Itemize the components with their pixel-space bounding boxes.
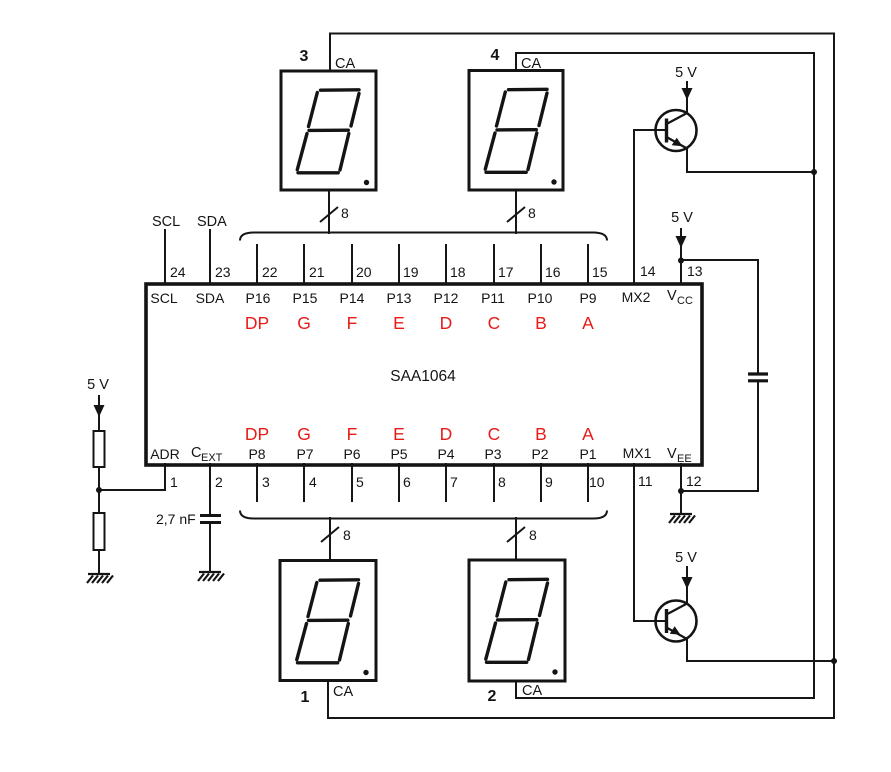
- svg-text:P4: P4: [437, 446, 454, 462]
- svg-text:B: B: [535, 424, 547, 444]
- svg-text:17: 17: [498, 264, 514, 280]
- svg-text:SDA: SDA: [196, 290, 225, 306]
- svg-text:4: 4: [491, 47, 500, 64]
- svg-text:B: B: [535, 313, 547, 333]
- svg-text:2: 2: [488, 688, 497, 705]
- svg-text:5 V: 5 V: [87, 377, 109, 393]
- svg-text:18: 18: [450, 264, 466, 280]
- svg-text:ADR: ADR: [150, 446, 180, 462]
- svg-text:13: 13: [687, 263, 703, 279]
- svg-text:P9: P9: [579, 290, 596, 306]
- svg-text:P15: P15: [293, 290, 318, 306]
- svg-text:P3: P3: [484, 446, 501, 462]
- svg-text:E: E: [393, 424, 405, 444]
- svg-text:5 V: 5 V: [675, 550, 697, 566]
- svg-text:EXT: EXT: [201, 452, 223, 464]
- svg-text:16: 16: [545, 264, 561, 280]
- svg-text:C: C: [191, 445, 201, 461]
- svg-text:EE: EE: [677, 453, 692, 465]
- svg-text:P7: P7: [296, 446, 313, 462]
- svg-text:CA: CA: [333, 684, 353, 700]
- svg-text:DP: DP: [245, 424, 269, 444]
- svg-text:A: A: [582, 313, 594, 333]
- svg-text:14: 14: [640, 263, 656, 279]
- svg-text:F: F: [347, 424, 358, 444]
- svg-text:11: 11: [638, 473, 653, 489]
- svg-text:1: 1: [170, 474, 178, 490]
- svg-text:P5: P5: [390, 446, 407, 462]
- svg-text:SDA: SDA: [197, 214, 227, 230]
- svg-text:G: G: [297, 313, 311, 333]
- svg-text:G: G: [297, 424, 311, 444]
- svg-text:DP: DP: [245, 313, 269, 333]
- svg-text:6: 6: [403, 474, 411, 490]
- svg-text:C: C: [488, 424, 501, 444]
- svg-text:C: C: [488, 313, 501, 333]
- svg-text:9: 9: [545, 474, 553, 490]
- svg-text:D: D: [440, 313, 453, 333]
- svg-text:3: 3: [300, 48, 309, 65]
- svg-text:P1: P1: [579, 446, 596, 462]
- svg-text:CA: CA: [335, 56, 355, 72]
- svg-text:21: 21: [309, 264, 325, 280]
- svg-text:4: 4: [309, 474, 317, 490]
- svg-text:8: 8: [529, 527, 537, 543]
- svg-text:P8: P8: [248, 446, 265, 462]
- svg-text:8: 8: [343, 527, 351, 543]
- svg-text:P10: P10: [528, 290, 553, 306]
- svg-text:20: 20: [356, 264, 372, 280]
- svg-text:MX2: MX2: [622, 289, 651, 305]
- svg-text:3: 3: [262, 474, 270, 490]
- svg-text:23: 23: [215, 264, 231, 280]
- svg-text:1: 1: [301, 689, 310, 706]
- svg-text:SCL: SCL: [152, 214, 180, 230]
- svg-text:P14: P14: [340, 290, 365, 306]
- svg-text:F: F: [347, 313, 358, 333]
- svg-text:8: 8: [341, 205, 349, 221]
- svg-text:12: 12: [686, 473, 702, 489]
- svg-text:5: 5: [356, 474, 364, 490]
- svg-text:8: 8: [498, 474, 506, 490]
- svg-text:D: D: [440, 424, 453, 444]
- svg-text:P16: P16: [246, 290, 271, 306]
- svg-text:MX1: MX1: [623, 445, 652, 461]
- svg-text:SCL: SCL: [150, 290, 177, 306]
- svg-text:V: V: [667, 288, 677, 304]
- svg-text:8: 8: [528, 205, 536, 221]
- svg-text:15: 15: [592, 264, 608, 280]
- svg-text:CA: CA: [521, 56, 541, 72]
- svg-text:P12: P12: [434, 290, 459, 306]
- svg-text:19: 19: [403, 264, 419, 280]
- svg-text:5 V: 5 V: [671, 210, 693, 226]
- svg-text:E: E: [393, 313, 405, 333]
- svg-text:7: 7: [450, 474, 458, 490]
- svg-text:2: 2: [215, 474, 223, 490]
- svg-text:P13: P13: [387, 290, 412, 306]
- svg-text:P2: P2: [531, 446, 548, 462]
- svg-text:P6: P6: [343, 446, 360, 462]
- svg-text:22: 22: [262, 264, 278, 280]
- svg-text:24: 24: [170, 264, 186, 280]
- svg-text:10: 10: [589, 474, 605, 490]
- svg-text:P11: P11: [481, 290, 505, 306]
- svg-text:2,7 nF: 2,7 nF: [156, 511, 196, 527]
- svg-text:V: V: [667, 446, 677, 462]
- svg-text:5 V: 5 V: [675, 65, 697, 81]
- svg-text:CA: CA: [522, 683, 542, 699]
- svg-text:SAA1064: SAA1064: [390, 368, 456, 385]
- svg-text:CC: CC: [677, 295, 693, 307]
- svg-text:A: A: [582, 424, 594, 444]
